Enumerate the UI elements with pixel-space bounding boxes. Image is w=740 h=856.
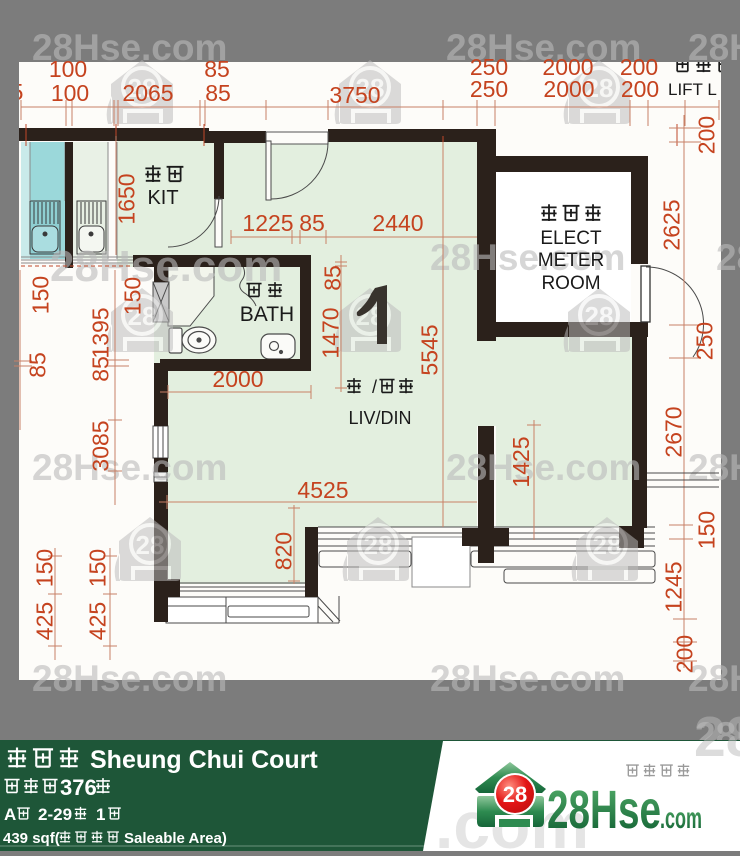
svg-text:150: 150 (32, 549, 58, 587)
svg-text:820: 820 (271, 532, 297, 570)
svg-text:250: 250 (692, 322, 718, 360)
svg-text:2625: 2625 (659, 199, 685, 250)
svg-text:200: 200 (694, 116, 720, 154)
svg-text:28Hse.com: 28Hse.com (446, 447, 641, 488)
svg-text:28Hse.com: 28Hse.com (688, 27, 740, 68)
svg-text:1470: 1470 (318, 307, 344, 358)
svg-text:28Hse.com: 28Hse.com (430, 658, 625, 699)
svg-text:2000: 2000 (543, 76, 594, 102)
svg-text:Sheung Chui Court: Sheung Chui Court (90, 746, 318, 774)
svg-text:85: 85 (204, 56, 230, 82)
svg-text:200: 200 (672, 635, 698, 673)
svg-text:1225: 1225 (242, 210, 293, 236)
svg-text:BATH: BATH (240, 303, 294, 326)
svg-text:2670: 2670 (661, 406, 687, 457)
svg-text:150: 150 (28, 276, 54, 314)
svg-text:376: 376 (60, 775, 97, 800)
svg-text:425: 425 (85, 602, 111, 640)
svg-text:150: 150 (85, 549, 111, 587)
svg-text:200: 200 (621, 76, 659, 102)
svg-text:2-29: 2-29 (38, 805, 72, 824)
svg-text:KIT: KIT (147, 187, 178, 209)
svg-text:LIV/DIN: LIV/DIN (348, 408, 411, 428)
svg-text:5545: 5545 (417, 324, 443, 375)
svg-text:439 sqf(: 439 sqf( (3, 830, 60, 847)
svg-text:425: 425 (32, 602, 58, 640)
svg-text:100: 100 (51, 80, 89, 106)
svg-text:1650: 1650 (114, 173, 140, 224)
svg-text:A: A (4, 805, 16, 824)
svg-text:2000: 2000 (212, 366, 263, 392)
svg-text:4525: 4525 (297, 477, 348, 503)
svg-text:1: 1 (96, 805, 105, 824)
svg-text:28: 28 (503, 782, 527, 807)
svg-text:3085: 3085 (88, 420, 114, 471)
svg-text:3750: 3750 (329, 82, 380, 108)
svg-text:150: 150 (120, 277, 146, 315)
svg-text:85: 85 (299, 210, 325, 236)
svg-text:85: 85 (320, 265, 346, 291)
svg-text:28: 28 (694, 705, 740, 769)
svg-text:Saleable Area): Saleable Area) (124, 830, 227, 847)
svg-text:28Hse.com: 28Hse.com (716, 237, 740, 278)
svg-text:28Hse.com: 28Hse.com (32, 447, 227, 488)
svg-text:28Hse: 28Hse (547, 780, 661, 840)
svg-text:85: 85 (205, 80, 231, 106)
svg-text:.com: .com (660, 802, 702, 835)
svg-text:85: 85 (88, 356, 114, 382)
svg-text:ROOM: ROOM (541, 273, 600, 294)
svg-text:/: / (372, 377, 377, 397)
svg-text:2065: 2065 (122, 80, 173, 106)
svg-text:28Hse.com: 28Hse.com (32, 658, 227, 699)
svg-text:1395: 1395 (88, 307, 114, 358)
svg-text:28Hse.com: 28Hse.com (688, 447, 740, 488)
svg-text:METER: METER (538, 250, 605, 271)
svg-text:1245: 1245 (661, 561, 687, 612)
svg-text:150: 150 (694, 511, 720, 549)
svg-text:85: 85 (25, 352, 51, 378)
svg-text:LIFT L: LIFT L (668, 80, 717, 99)
svg-text:1425: 1425 (508, 436, 534, 487)
svg-text:ELECT: ELECT (540, 228, 602, 249)
svg-text:2440: 2440 (372, 210, 423, 236)
svg-text:100: 100 (49, 56, 87, 82)
svg-text:250: 250 (470, 76, 508, 102)
